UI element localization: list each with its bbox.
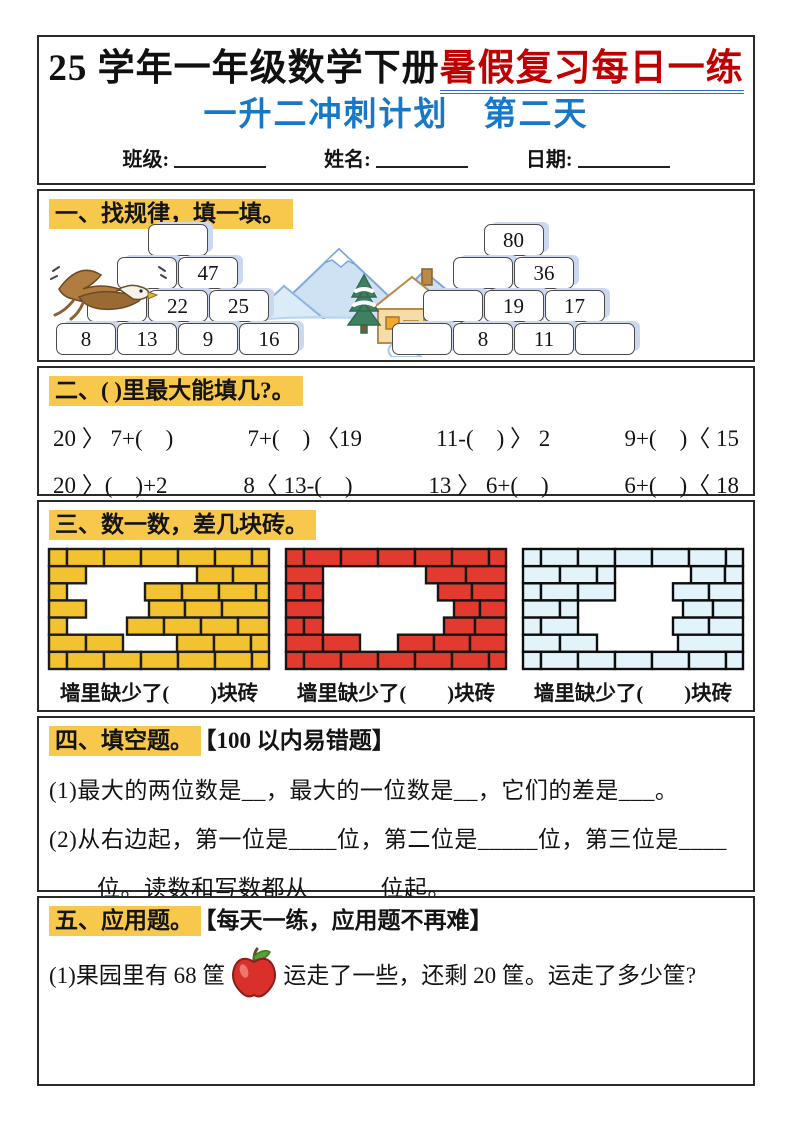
wall-brick — [560, 635, 597, 652]
pyramid-brick: 8 — [453, 323, 513, 355]
problem-text-after: 运走了一些，还剩 20 筐。运走了多少筐? — [283, 956, 696, 990]
wall-brick — [286, 566, 323, 583]
wall-brick — [341, 652, 378, 669]
wall-brick — [578, 652, 615, 669]
wall-brick — [286, 635, 323, 652]
wall-brick — [286, 583, 304, 600]
wall-brick — [541, 583, 578, 600]
section-2: 二、( )里最大能填几?。 20 〉 7+( ) 7+( ) 〈19 11-( … — [37, 366, 755, 496]
wall-brick — [222, 600, 269, 617]
wall-brick — [709, 618, 743, 635]
wall-brick — [252, 549, 269, 566]
wall-brick — [104, 549, 141, 566]
pyramid-right: 80361917811 — [391, 224, 635, 356]
pyramid-brick-blank — [453, 257, 513, 289]
page-subtitle: 一升二冲刺计划 第二天 — [39, 93, 753, 137]
pyramid-row: 813916 — [55, 323, 299, 356]
wall-brick — [164, 618, 201, 635]
section-3: 三、数一数，差几块砖。 墙里缺少了( )块砖 墙里缺少了( )块砖 墙里缺少了(… — [37, 500, 755, 712]
wall-brick — [689, 652, 726, 669]
wall-brick — [67, 652, 104, 669]
wall-brick — [177, 635, 214, 652]
wall-brick — [251, 635, 269, 652]
pyramid-row: 811 — [391, 323, 635, 356]
wall-brick — [691, 566, 725, 583]
wall-brick — [725, 566, 743, 583]
wall-brick — [323, 635, 360, 652]
fill-blank-line-2: (2)从右边起，第一位是____位，第二位是_____位，第三位是____ — [39, 820, 753, 854]
inequality-row-2: 20 〉( )+2 8〈 13-( ) 13 〉 6+( ) 6+( )〈 18 — [39, 466, 753, 500]
problem: 11-( ) 〉 2 — [436, 419, 550, 453]
wall-brick — [434, 635, 470, 652]
date-field: 日期: — [526, 143, 670, 172]
wall-brick — [523, 566, 560, 583]
wall-brick — [201, 618, 238, 635]
title-block: 25 学年一年级数学下册暑假复习每日一练 一升二冲刺计划 第二天 班级: 姓名:… — [37, 35, 755, 185]
wall-brick — [49, 652, 67, 669]
pyramid-brick: 16 — [239, 323, 299, 355]
wall-brick — [541, 618, 578, 635]
title-red-part: 暑假复习每日一练 — [440, 48, 744, 94]
wall-brick — [472, 583, 506, 600]
brick-walls — [39, 540, 753, 672]
pyramid-row: 36 — [452, 257, 574, 290]
wall-brick — [104, 652, 141, 669]
wall-caption: 墙里缺少了( )块砖 — [43, 676, 275, 706]
pyramid-brick-blank — [423, 290, 483, 322]
wall-brick — [597, 566, 615, 583]
eagle-icon — [49, 259, 169, 325]
class-field: 班级: — [122, 143, 266, 172]
fill-blank-line-1: (1)最大的两位数是__，最大的一位数是__，它们的差是___。 — [39, 771, 753, 805]
problem: 20 〉( )+2 — [53, 466, 168, 500]
pyramid-brick: 11 — [514, 323, 574, 355]
pyramid-brick-blank — [575, 323, 635, 355]
wall-brick — [466, 566, 506, 583]
wall-brick — [178, 652, 215, 669]
wall-brick — [233, 566, 269, 583]
wall-brick — [438, 583, 472, 600]
brick-wall-blue — [519, 546, 747, 672]
pyramid-brick: 17 — [545, 290, 605, 322]
worksheet-page: 25 学年一年级数学下册暑假复习每日一练 一升二冲刺计划 第二天 班级: 姓名:… — [37, 35, 755, 1090]
wall-brick — [683, 600, 713, 617]
wall-caption: 墙里缺少了( )块砖 — [280, 676, 512, 706]
wall-brick — [286, 652, 304, 669]
wall-brick — [726, 549, 743, 566]
section-4-title: 四、填空题。 — [49, 726, 201, 756]
wall-brick — [304, 583, 323, 600]
wall-brick — [178, 549, 215, 566]
inequality-row-1: 20 〉 7+( ) 7+( ) 〈19 11-( ) 〉 2 9+( )〈 1… — [39, 419, 753, 453]
wall-brick — [673, 583, 709, 600]
pyramid-brick-blank — [148, 224, 208, 256]
info-fields: 班级: 姓名: 日期: — [39, 143, 753, 172]
pyramid-brick-blank — [392, 323, 452, 355]
wall-brick — [141, 549, 178, 566]
section-2-title: 二、( )里最大能填几?。 — [49, 376, 303, 406]
class-blank — [174, 148, 266, 168]
wall-brick — [489, 549, 506, 566]
wall-brick — [615, 549, 652, 566]
pyramid-brick: 19 — [484, 290, 544, 322]
wall-brick — [49, 635, 86, 652]
pyramid-row — [147, 224, 208, 257]
pyramid-puzzle: 472225813916 80361917811 — [39, 231, 753, 359]
wall-brick — [470, 635, 506, 652]
section-1: 一、找规律，填一填。 — [37, 189, 755, 362]
wall-brick — [127, 618, 164, 635]
wall-brick — [286, 600, 323, 617]
wall-brick — [426, 566, 466, 583]
wall-brick — [49, 618, 67, 635]
wall-brick — [286, 549, 304, 566]
wall-brick — [673, 618, 709, 635]
wall-brick — [415, 652, 452, 669]
wall-brick — [713, 600, 743, 617]
problem: 20 〉 7+( ) — [53, 419, 173, 453]
wall-brick — [709, 583, 743, 600]
problem: 9+( )〈 15 — [624, 419, 739, 453]
wall-brick — [304, 618, 323, 635]
wall-brick — [489, 652, 506, 669]
wall-brick — [560, 600, 578, 617]
wall-brick — [67, 549, 104, 566]
wall-brick — [454, 600, 480, 617]
wall-brick — [86, 635, 123, 652]
wall-brick — [378, 652, 415, 669]
word-problem: (1)果园里有 68 筐 运走了一些，还剩 20 筐。运走了多少筐? — [39, 946, 753, 1000]
name-field: 姓名: — [324, 143, 468, 172]
pyramid-brick: 80 — [484, 224, 544, 256]
brick-wall-yellow — [45, 546, 273, 672]
wall-brick — [182, 583, 219, 600]
pyramid-brick: 9 — [178, 323, 238, 355]
problem: 13 〉 6+( ) — [428, 466, 548, 500]
wall-brick — [149, 600, 185, 617]
problem: 6+( )〈 18 — [624, 466, 739, 500]
title-black-part: 25 学年一年级数学下册 — [48, 48, 439, 89]
wall-brick — [49, 583, 67, 600]
section-4-subtitle: 【100 以内易错题】 — [201, 728, 395, 753]
wall-brick — [378, 549, 415, 566]
wall-brick — [49, 566, 86, 583]
wall-brick — [145, 583, 182, 600]
pyramid-brick: 47 — [178, 257, 238, 289]
wall-brick — [541, 652, 578, 669]
wall-brick — [689, 549, 726, 566]
date-blank — [578, 148, 670, 168]
wall-brick — [238, 618, 269, 635]
wall-brick — [219, 583, 256, 600]
pyramid-brick: 8 — [56, 323, 116, 355]
wall-brick — [652, 549, 689, 566]
wall-brick — [578, 549, 615, 566]
wall-brick — [615, 652, 652, 669]
problem: 8〈 13-( ) — [243, 466, 352, 500]
wall-caption: 墙里缺少了( )块砖 — [517, 676, 749, 706]
pyramid-brick: 25 — [209, 290, 269, 322]
wall-brick — [256, 583, 269, 600]
wall-brick — [304, 549, 341, 566]
wall-brick — [475, 618, 506, 635]
wall-brick — [49, 549, 67, 566]
pyramid-brick: 13 — [117, 323, 177, 355]
wall-brick — [578, 583, 615, 600]
wall-brick — [452, 652, 489, 669]
section-3-title: 三、数一数，差几块砖。 — [49, 510, 316, 540]
wall-captions: 墙里缺少了( )块砖 墙里缺少了( )块砖 墙里缺少了( )块砖 — [39, 676, 753, 706]
wall-brick — [185, 600, 222, 617]
wall-brick — [678, 635, 743, 652]
wall-brick — [215, 652, 252, 669]
wall-brick — [523, 549, 541, 566]
pyramid-brick: 36 — [514, 257, 574, 289]
wall-brick — [523, 635, 560, 652]
wall-brick — [252, 652, 269, 669]
section-5: 五、应用题。【每天一练，应用题不再难】 (1)果园里有 68 筐 运走了一些，还… — [37, 896, 755, 1086]
page-title: 25 学年一年级数学下册暑假复习每日一练 — [39, 45, 753, 93]
wall-brick — [523, 652, 541, 669]
problem-text-before: (1)果园里有 68 筐 — [49, 956, 225, 990]
wall-brick — [726, 652, 743, 669]
apple-icon — [231, 946, 277, 1000]
wall-brick — [560, 566, 597, 583]
brick-wall-red — [282, 546, 510, 672]
wall-brick — [652, 652, 689, 669]
wall-brick — [214, 635, 251, 652]
wall-brick — [398, 635, 434, 652]
name-blank — [376, 148, 468, 168]
wall-brick — [215, 549, 252, 566]
problem: 7+( ) 〈19 — [247, 419, 362, 453]
section-4: 四、填空题。【100 以内易错题】 (1)最大的两位数是__，最大的一位数是__… — [37, 716, 755, 892]
wall-brick — [141, 652, 178, 669]
wall-brick — [286, 618, 304, 635]
wall-brick — [523, 600, 560, 617]
pyramid-row: 80 — [483, 224, 544, 257]
wall-brick — [49, 600, 86, 617]
wall-brick — [523, 618, 541, 635]
wall-brick — [415, 549, 452, 566]
wall-brick — [197, 566, 233, 583]
wall-brick — [341, 549, 378, 566]
wall-brick — [452, 549, 489, 566]
wall-brick — [444, 618, 475, 635]
wall-brick — [541, 549, 578, 566]
pyramid-row: 1917 — [422, 290, 605, 323]
wall-brick — [480, 600, 506, 617]
section-5-subtitle: 【每天一练，应用题不再难】 — [201, 908, 493, 933]
section-5-title: 五、应用题。 — [49, 906, 201, 936]
wall-brick — [304, 652, 341, 669]
wall-brick — [523, 583, 541, 600]
